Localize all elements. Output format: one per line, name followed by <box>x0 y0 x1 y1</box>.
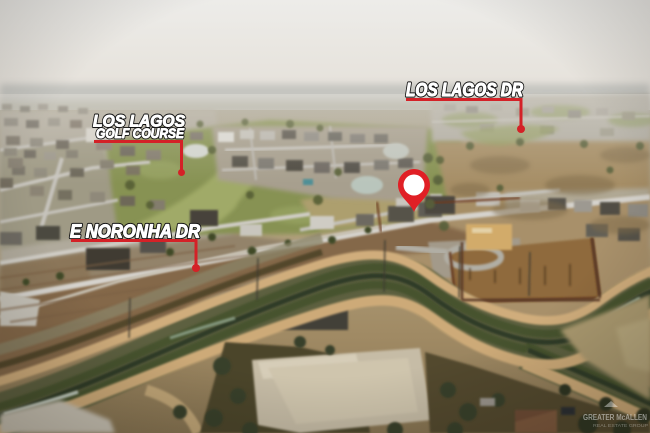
svg-text:E NORONHA DR: E NORONHA DR <box>70 222 200 242</box>
svg-text:GOLF COURSE: GOLF COURSE <box>96 126 185 141</box>
svg-text:LOS LAGOS DR: LOS LAGOS DR <box>406 80 523 100</box>
svg-text:GREATER McALLEN: GREATER McALLEN <box>583 413 647 422</box>
svg-text:REAL ESTATE GROUP: REAL ESTATE GROUP <box>593 423 648 428</box>
